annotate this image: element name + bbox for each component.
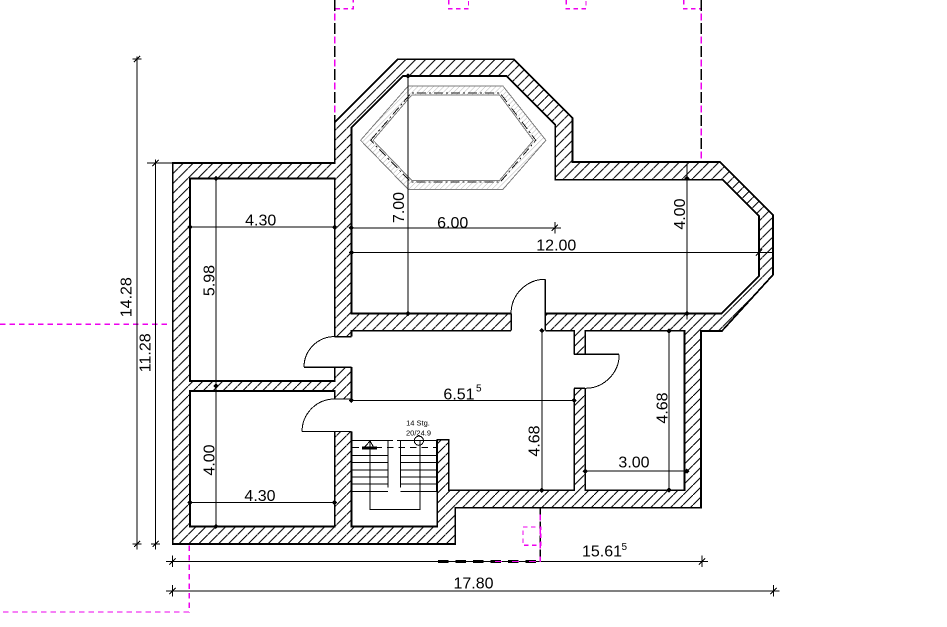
svg-text:6.51: 6.51 [443, 386, 474, 403]
svg-text:4.30: 4.30 [244, 488, 275, 505]
svg-text:12.00: 12.00 [536, 238, 576, 255]
svg-text:5: 5 [622, 542, 628, 553]
svg-text:6.00: 6.00 [437, 215, 468, 232]
svg-text:20/24.9: 20/24.9 [406, 429, 431, 438]
svg-text:7.00: 7.00 [391, 192, 408, 223]
svg-text:4.30: 4.30 [245, 213, 276, 230]
svg-text:3.00: 3.00 [618, 455, 649, 472]
svg-text:5.98: 5.98 [202, 265, 219, 296]
svg-text:14 Stg.: 14 Stg. [406, 419, 430, 428]
svg-text:4.00: 4.00 [672, 198, 689, 229]
svg-text:4.68: 4.68 [655, 392, 672, 423]
svg-text:11.28: 11.28 [138, 333, 155, 372]
svg-text:4.00: 4.00 [202, 444, 219, 475]
svg-text:15.61: 15.61 [582, 544, 622, 561]
svg-text:17.80: 17.80 [453, 576, 493, 593]
svg-text:4.68: 4.68 [526, 425, 543, 456]
svg-text:14.28: 14.28 [119, 277, 136, 317]
svg-text:5: 5 [476, 383, 482, 394]
